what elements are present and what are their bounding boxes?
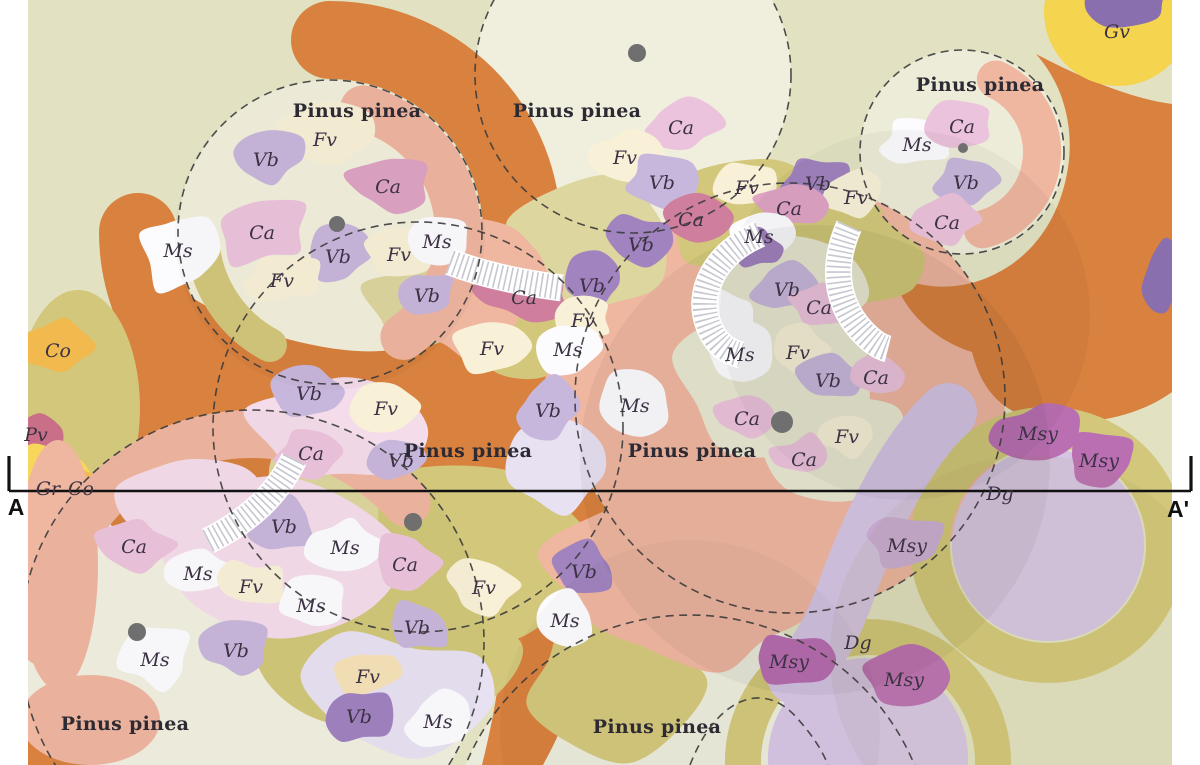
- section-marker-a-prime: A': [1167, 496, 1189, 522]
- tree-canopy-label: Pinus pinea: [513, 100, 641, 122]
- species-label: Msy: [768, 651, 809, 673]
- species-label: Fv: [386, 244, 411, 266]
- species-label: Vb: [805, 173, 831, 195]
- trunk-dot: [128, 623, 146, 641]
- species-label: Ca: [392, 554, 418, 576]
- tree-canopy-label: Pinus pinea: [593, 716, 721, 738]
- species-label: Ms: [724, 344, 754, 366]
- species-label: Ms: [422, 711, 452, 733]
- species-label: Vb: [535, 400, 561, 422]
- species-label: Vb: [296, 383, 322, 405]
- species-label: Ca: [668, 117, 694, 139]
- species-label: Ms: [549, 610, 579, 632]
- species-label: Vb: [271, 516, 297, 538]
- species-label: Vb: [223, 640, 249, 662]
- species-label: Fv: [479, 338, 504, 360]
- species-label: Fv: [612, 147, 637, 169]
- species-label: Fv: [471, 577, 496, 599]
- species-label: Fv: [238, 576, 263, 598]
- species-label: Fv: [373, 398, 398, 420]
- species-label: Fv: [734, 177, 759, 199]
- species-label: Ca: [511, 287, 537, 309]
- trunk-dot: [958, 143, 968, 153]
- trunk-dot: [404, 513, 422, 531]
- trunk-dot: [329, 216, 345, 232]
- tree-canopy-label: Pinus pinea: [404, 440, 532, 462]
- species-label: Ms: [552, 339, 582, 361]
- species-label: Vb: [571, 561, 597, 583]
- species-label: Dg: [985, 483, 1013, 505]
- species-label: Ms: [329, 537, 359, 559]
- species-label: Ca: [806, 297, 832, 319]
- species-label: Vb: [346, 706, 372, 728]
- species-label: Pv: [23, 424, 48, 446]
- species-label: Msy: [1078, 450, 1119, 472]
- species-label: Ca: [776, 198, 802, 220]
- species-label: Ms: [421, 231, 451, 253]
- species-label: Vb: [414, 285, 440, 307]
- tree-canopy-label: Pinus pinea: [628, 440, 756, 462]
- species-label: Fv: [834, 426, 859, 448]
- trunk-dot: [771, 411, 793, 433]
- species-label: Fv: [355, 666, 380, 688]
- species-label: Msy: [886, 535, 927, 557]
- section-marker-a: A: [8, 494, 25, 520]
- species-label: Vb: [649, 172, 675, 194]
- species-label: Fv: [312, 129, 337, 151]
- species-label: Ms: [182, 563, 212, 585]
- tree-canopy-label: Pinus pinea: [293, 100, 421, 122]
- right-margin: [1172, 0, 1200, 765]
- species-label: Gr: [36, 478, 62, 500]
- species-label: Fv: [570, 310, 595, 332]
- species-label: Ca: [375, 176, 401, 198]
- species-label: Ms: [619, 395, 649, 417]
- species-label: Ca: [678, 209, 704, 231]
- left-margin: [0, 0, 28, 765]
- species-label: Ca: [791, 449, 817, 471]
- species-label: Ca: [934, 212, 960, 234]
- species-label: Vb: [325, 246, 351, 268]
- species-label: Ms: [743, 226, 773, 248]
- species-label: Vb: [579, 275, 605, 297]
- species-label: Ms: [295, 595, 325, 617]
- species-label: Ca: [949, 116, 975, 138]
- species-label: Co: [68, 478, 94, 500]
- trunk-dot: [628, 44, 646, 62]
- species-label: Ms: [162, 240, 192, 262]
- species-label: Vb: [815, 370, 841, 392]
- species-label: Vb: [628, 234, 654, 256]
- species-label: Dg: [843, 632, 871, 654]
- species-label: Vb: [404, 617, 430, 639]
- species-label: Ca: [121, 536, 147, 558]
- species-label: Msy: [1017, 423, 1058, 445]
- species-label: Msy: [883, 669, 924, 691]
- species-label: Fv: [843, 187, 868, 209]
- species-label: Ca: [298, 443, 324, 465]
- tree-canopy-label: Pinus pinea: [916, 74, 1044, 96]
- species-label: Ca: [249, 222, 275, 244]
- species-label: Gv: [1104, 21, 1130, 43]
- planting-plan-canvas: A A' FvVbCaCaMsVbFvMsFvVbCaFvVbFvVbFvCaC…: [0, 0, 1200, 765]
- species-label: Vb: [953, 172, 979, 194]
- species-label: Ms: [139, 649, 169, 671]
- species-label: Fv: [785, 342, 810, 364]
- species-label: Vb: [774, 279, 800, 301]
- species-label: Fv: [269, 270, 294, 292]
- species-label: Ca: [734, 408, 760, 430]
- tree-canopy-label: Pinus pinea: [61, 713, 189, 735]
- species-label: Ca: [863, 367, 889, 389]
- species-label: Ms: [901, 134, 931, 156]
- planting-plan-stage: A A' FvVbCaCaMsVbFvMsFvVbCaFvVbFvVbFvCaC…: [0, 0, 1200, 765]
- species-label: Co: [45, 340, 71, 362]
- species-label: Vb: [253, 149, 279, 171]
